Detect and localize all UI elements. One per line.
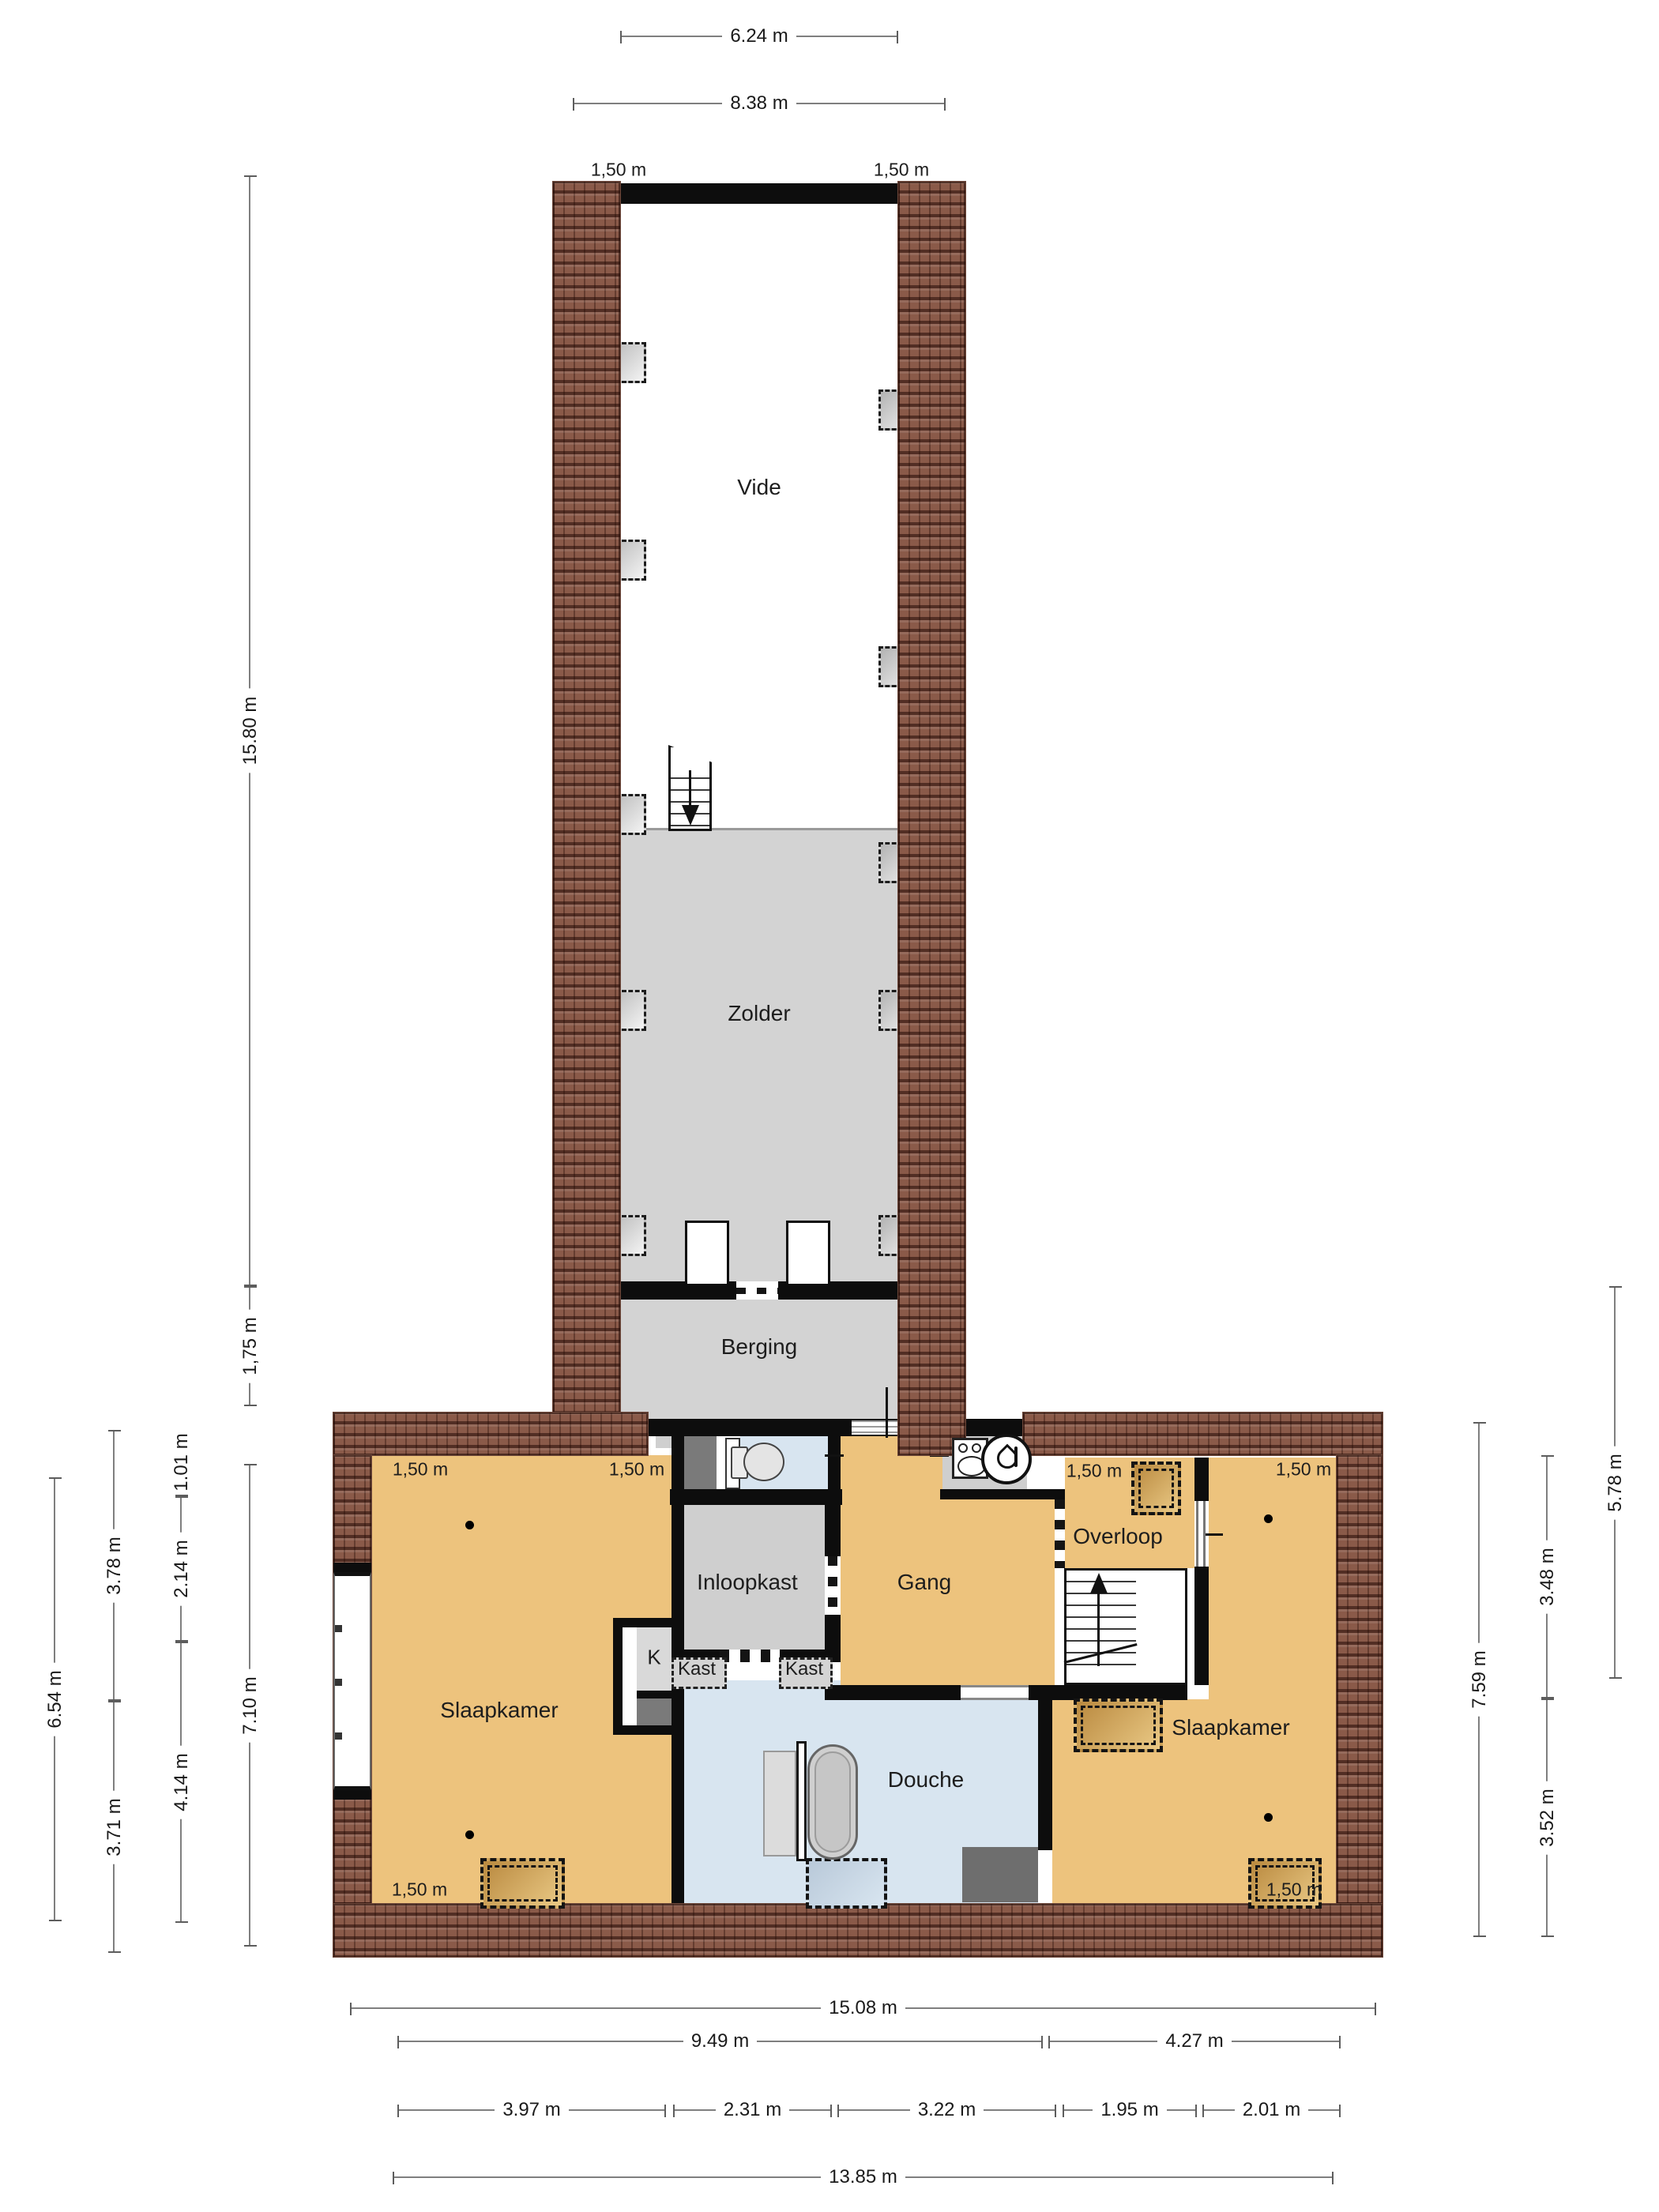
light-point	[1264, 1514, 1273, 1523]
dormer-skylight-icon	[480, 1858, 565, 1909]
floorplan-canvas: Vide Zolder Berging Slaapkamer Inloopkas…	[0, 0, 1659, 2212]
tower-roof-right	[898, 182, 965, 1455]
dim-8-38: 8.38 m	[573, 103, 946, 128]
dim-7-59: 7.59 m	[1478, 1422, 1480, 1937]
label-zolder: Zolder	[728, 1001, 790, 1026]
dim-label: 2.31 m	[716, 2098, 789, 2122]
room-zolder	[620, 830, 898, 1281]
dim-9-49: 9.49 m	[397, 2041, 1043, 2066]
dim-3-48: 3.48 m	[1546, 1455, 1548, 1698]
dim-label: 1,75 m	[236, 1309, 265, 1382]
height-annotation: 1,50 m	[393, 1459, 448, 1480]
dim-label: 1.01 m	[167, 1425, 196, 1499]
roof-band-top-left	[333, 1413, 648, 1455]
washer-knob-icon	[958, 1443, 968, 1453]
dim-3-22: 3.22 m	[837, 2109, 1056, 2135]
roof-band-bottom	[333, 1904, 1382, 1957]
berging-door-axis	[886, 1387, 888, 1438]
label-douche: Douche	[888, 1767, 965, 1793]
tower-roof-left	[553, 182, 620, 1455]
dim-label: 7.10 m	[236, 1668, 265, 1742]
window-stub-top	[333, 1563, 371, 1572]
label-kast-left: Kast	[678, 1658, 716, 1680]
dim-1-75: 1,75 m	[249, 1286, 250, 1406]
k-closet-door	[623, 1627, 637, 1725]
label-inloopkast: Inloopkast	[697, 1570, 798, 1595]
dim-label: 8.38 m	[722, 92, 796, 115]
wall-toilet-right	[828, 1436, 841, 1489]
dim-label: 6.54 m	[41, 1662, 70, 1736]
thermometer-icon	[1014, 1446, 1018, 1467]
dim-6-54: 6.54 m	[54, 1477, 55, 1921]
dim-label: 2.01 m	[1235, 2098, 1308, 2122]
wall-douche-top-right	[1029, 1685, 1065, 1700]
room-gang	[841, 1436, 942, 1685]
gang-bottom-wall	[825, 1685, 961, 1700]
dark-shower-block	[962, 1847, 1038, 1902]
washer-knob-icon	[972, 1443, 981, 1453]
height-annotation: 1,50 m	[1276, 1459, 1331, 1480]
stairs-up-arrow	[1090, 1573, 1108, 1593]
overloop-slide-door	[1055, 1499, 1065, 1568]
dim-label: 1.95 m	[1093, 2098, 1166, 2122]
roof-band-right	[1337, 1455, 1382, 1904]
height-annotation: 1,50 m	[1066, 1461, 1122, 1482]
dim-label: 15.80 m	[236, 689, 265, 773]
dim-label: 2.14 m	[167, 1532, 196, 1605]
label-slaapkamer-left: Slaapkamer	[440, 1698, 558, 1723]
wall-overloop-right-top	[1194, 1458, 1209, 1501]
window-tick	[335, 1732, 342, 1740]
dormer-skylight-icon	[1074, 1698, 1163, 1752]
dim-3-78: 3.78 m	[113, 1430, 115, 1701]
roof-band-top-right	[1023, 1413, 1382, 1455]
height-annotation: 1,50 m	[609, 1459, 664, 1480]
dim-3-52: 3.52 m	[1546, 1698, 1548, 1937]
wall-overloop-right-bottom	[1194, 1567, 1209, 1685]
bath-partition	[796, 1741, 807, 1861]
height-annotation: 1,50 m	[874, 160, 929, 181]
dim-2-14: 2.14 m	[180, 1496, 182, 1642]
dim-1-01: 1.01 m	[180, 1428, 182, 1496]
label-berging: Berging	[721, 1334, 798, 1360]
dim-label: 4.14 m	[167, 1745, 196, 1819]
k-closet-dark	[637, 1698, 671, 1725]
dim-label: 3.48 m	[1533, 1540, 1562, 1613]
height-annotation: 1,50 m	[1266, 1879, 1322, 1901]
wall-inloopkast-right-top	[825, 1505, 841, 1556]
dim-2-31: 2.31 m	[673, 2109, 832, 2135]
stairs-up	[1064, 1568, 1187, 1685]
douche-door-gap	[961, 1685, 1029, 1700]
door-swing-tick	[825, 1454, 844, 1457]
label-slaapkamer-right: Slaapkamer	[1172, 1715, 1289, 1740]
zolder-closet-right	[786, 1221, 830, 1286]
light-point	[1264, 1813, 1273, 1822]
label-vide: Vide	[737, 475, 781, 500]
bathtub-icon	[807, 1744, 858, 1860]
zolder-door-gap	[736, 1288, 778, 1294]
window-tick	[335, 1625, 342, 1632]
light-point	[465, 1830, 474, 1839]
dim-4-14: 4.14 m	[180, 1642, 182, 1923]
room-gang-extension	[942, 1499, 1055, 1685]
toilet-bowl-icon	[743, 1443, 784, 1481]
dim-3-71: 3.71 m	[113, 1701, 115, 1953]
dim-4-27: 4.27 m	[1048, 2041, 1341, 2066]
vanity-cabinet	[763, 1751, 796, 1856]
dim-label: 3.97 m	[495, 2098, 568, 2122]
tower-top-wall	[615, 183, 903, 204]
label-k-closet: K	[647, 1646, 660, 1670]
dim-label: 7.59 m	[1465, 1642, 1494, 1716]
stairs-down-arrow	[682, 805, 699, 826]
zolder-closet-left	[685, 1221, 729, 1286]
dim-label: 9.49 m	[683, 2030, 757, 2053]
label-kast-right: Kast	[785, 1658, 823, 1680]
dim-label: 3.22 m	[910, 2098, 984, 2122]
wall-below-toilet	[670, 1489, 842, 1505]
dim-label: 4.27 m	[1157, 2030, 1231, 2053]
dim-6-24: 6.24 m	[620, 36, 898, 61]
stairs-down-arrow-line	[689, 770, 691, 808]
dormer-skylight-icon	[1131, 1461, 1181, 1515]
dim-3-97: 3.97 m	[397, 2109, 666, 2135]
boiler-icon	[981, 1434, 1032, 1484]
light-point	[465, 1521, 474, 1529]
dim-2-01: 2.01 m	[1202, 2109, 1341, 2135]
stairs-up-arrow-line	[1097, 1590, 1100, 1666]
dim-label: 15.08 m	[821, 1996, 905, 2020]
window-stub-bottom	[333, 1790, 371, 1800]
wall-douche-right	[1038, 1699, 1052, 1850]
dim-13-85: 13.85 m	[393, 2176, 1334, 2202]
dim-label: 3.78 m	[100, 1529, 129, 1602]
dim-label: 3.52 m	[1533, 1781, 1562, 1854]
room-vide	[620, 204, 898, 830]
height-annotation: 1,50 m	[392, 1879, 447, 1901]
dim-label: 3.71 m	[100, 1790, 129, 1864]
dim-1-95: 1.95 m	[1063, 2109, 1197, 2135]
dim-15-80: 15.80 m	[249, 175, 250, 1286]
label-gang: Gang	[897, 1570, 952, 1595]
wall-below-tech	[940, 1489, 1065, 1499]
dim-label: 13.85 m	[821, 2165, 905, 2189]
inloopkast-slide-door	[720, 1650, 780, 1662]
overloop-window-tick	[1206, 1533, 1223, 1536]
window-tick	[335, 1679, 342, 1686]
dim-7-10: 7.10 m	[249, 1464, 250, 1947]
height-annotation: 1,50 m	[591, 160, 646, 181]
label-overloop: Overloop	[1073, 1524, 1163, 1549]
dim-label: 5.78 m	[1601, 1446, 1630, 1519]
vide-zolder-line	[620, 828, 898, 830]
dim-5-78: 5.78 m	[1614, 1286, 1616, 1679]
left-window	[333, 1572, 371, 1790]
dim-label: 6.24 m	[722, 24, 796, 48]
bathtub-inner	[814, 1751, 851, 1853]
inloopkast-pocket-door	[828, 1556, 837, 1615]
shower-area-dashed	[806, 1858, 887, 1909]
overloop-window	[1196, 1501, 1206, 1567]
